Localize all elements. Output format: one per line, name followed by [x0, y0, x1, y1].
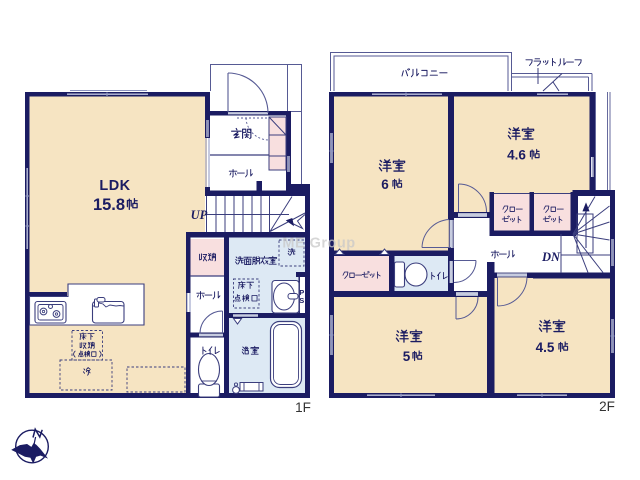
- svg-text:DN: DN: [541, 250, 561, 264]
- svg-text:LDK: LDK: [99, 178, 130, 194]
- svg-text:2F: 2F: [599, 399, 615, 414]
- svg-text:S: S: [299, 296, 304, 305]
- svg-text:6: 6: [381, 177, 389, 192]
- svg-text:ME Group: ME Group: [282, 236, 355, 252]
- svg-text:5: 5: [403, 349, 411, 364]
- svg-text:4.6: 4.6: [507, 148, 526, 163]
- svg-text:4.5: 4.5: [536, 340, 555, 355]
- svg-text:UP: UP: [191, 208, 208, 222]
- svg-text:15.8: 15.8: [93, 196, 125, 214]
- svg-text:1F: 1F: [295, 400, 311, 415]
